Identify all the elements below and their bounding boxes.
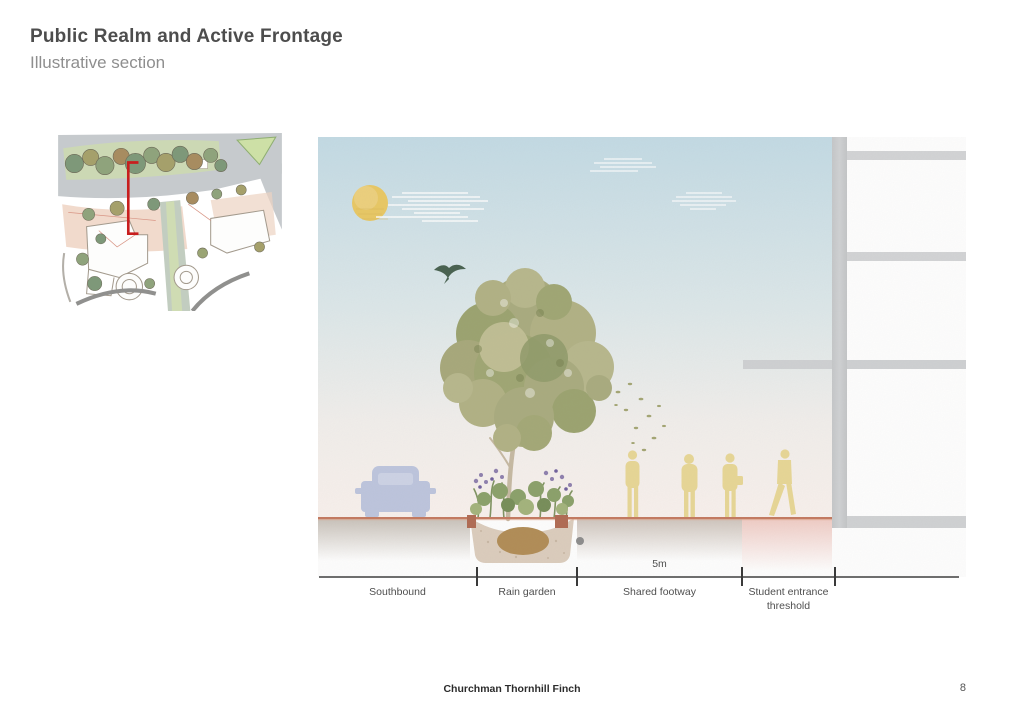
paper-grain (318, 137, 966, 577)
dimension-tick (476, 567, 478, 586)
page-subtitle: Illustrative section (30, 53, 165, 73)
page: Public Realm and Active Frontage Illustr… (0, 0, 1024, 724)
section-illustration (318, 137, 966, 577)
label-rain-garden: Rain garden (477, 585, 577, 599)
footer-company: Churchman Thornhill Finch (0, 683, 1024, 695)
dimension-tick (834, 567, 836, 586)
label-southbound: Southbound (318, 585, 477, 599)
dimension-line (319, 576, 959, 578)
label-student-entrance: Student entrance threshold (740, 585, 837, 613)
dimension-value: 5m (577, 558, 742, 570)
label-shared-footway: Shared footway (577, 585, 742, 599)
footer-page-number: 8 (960, 682, 966, 694)
key-plan-map (58, 133, 282, 311)
page-title: Public Realm and Active Frontage (30, 26, 343, 48)
